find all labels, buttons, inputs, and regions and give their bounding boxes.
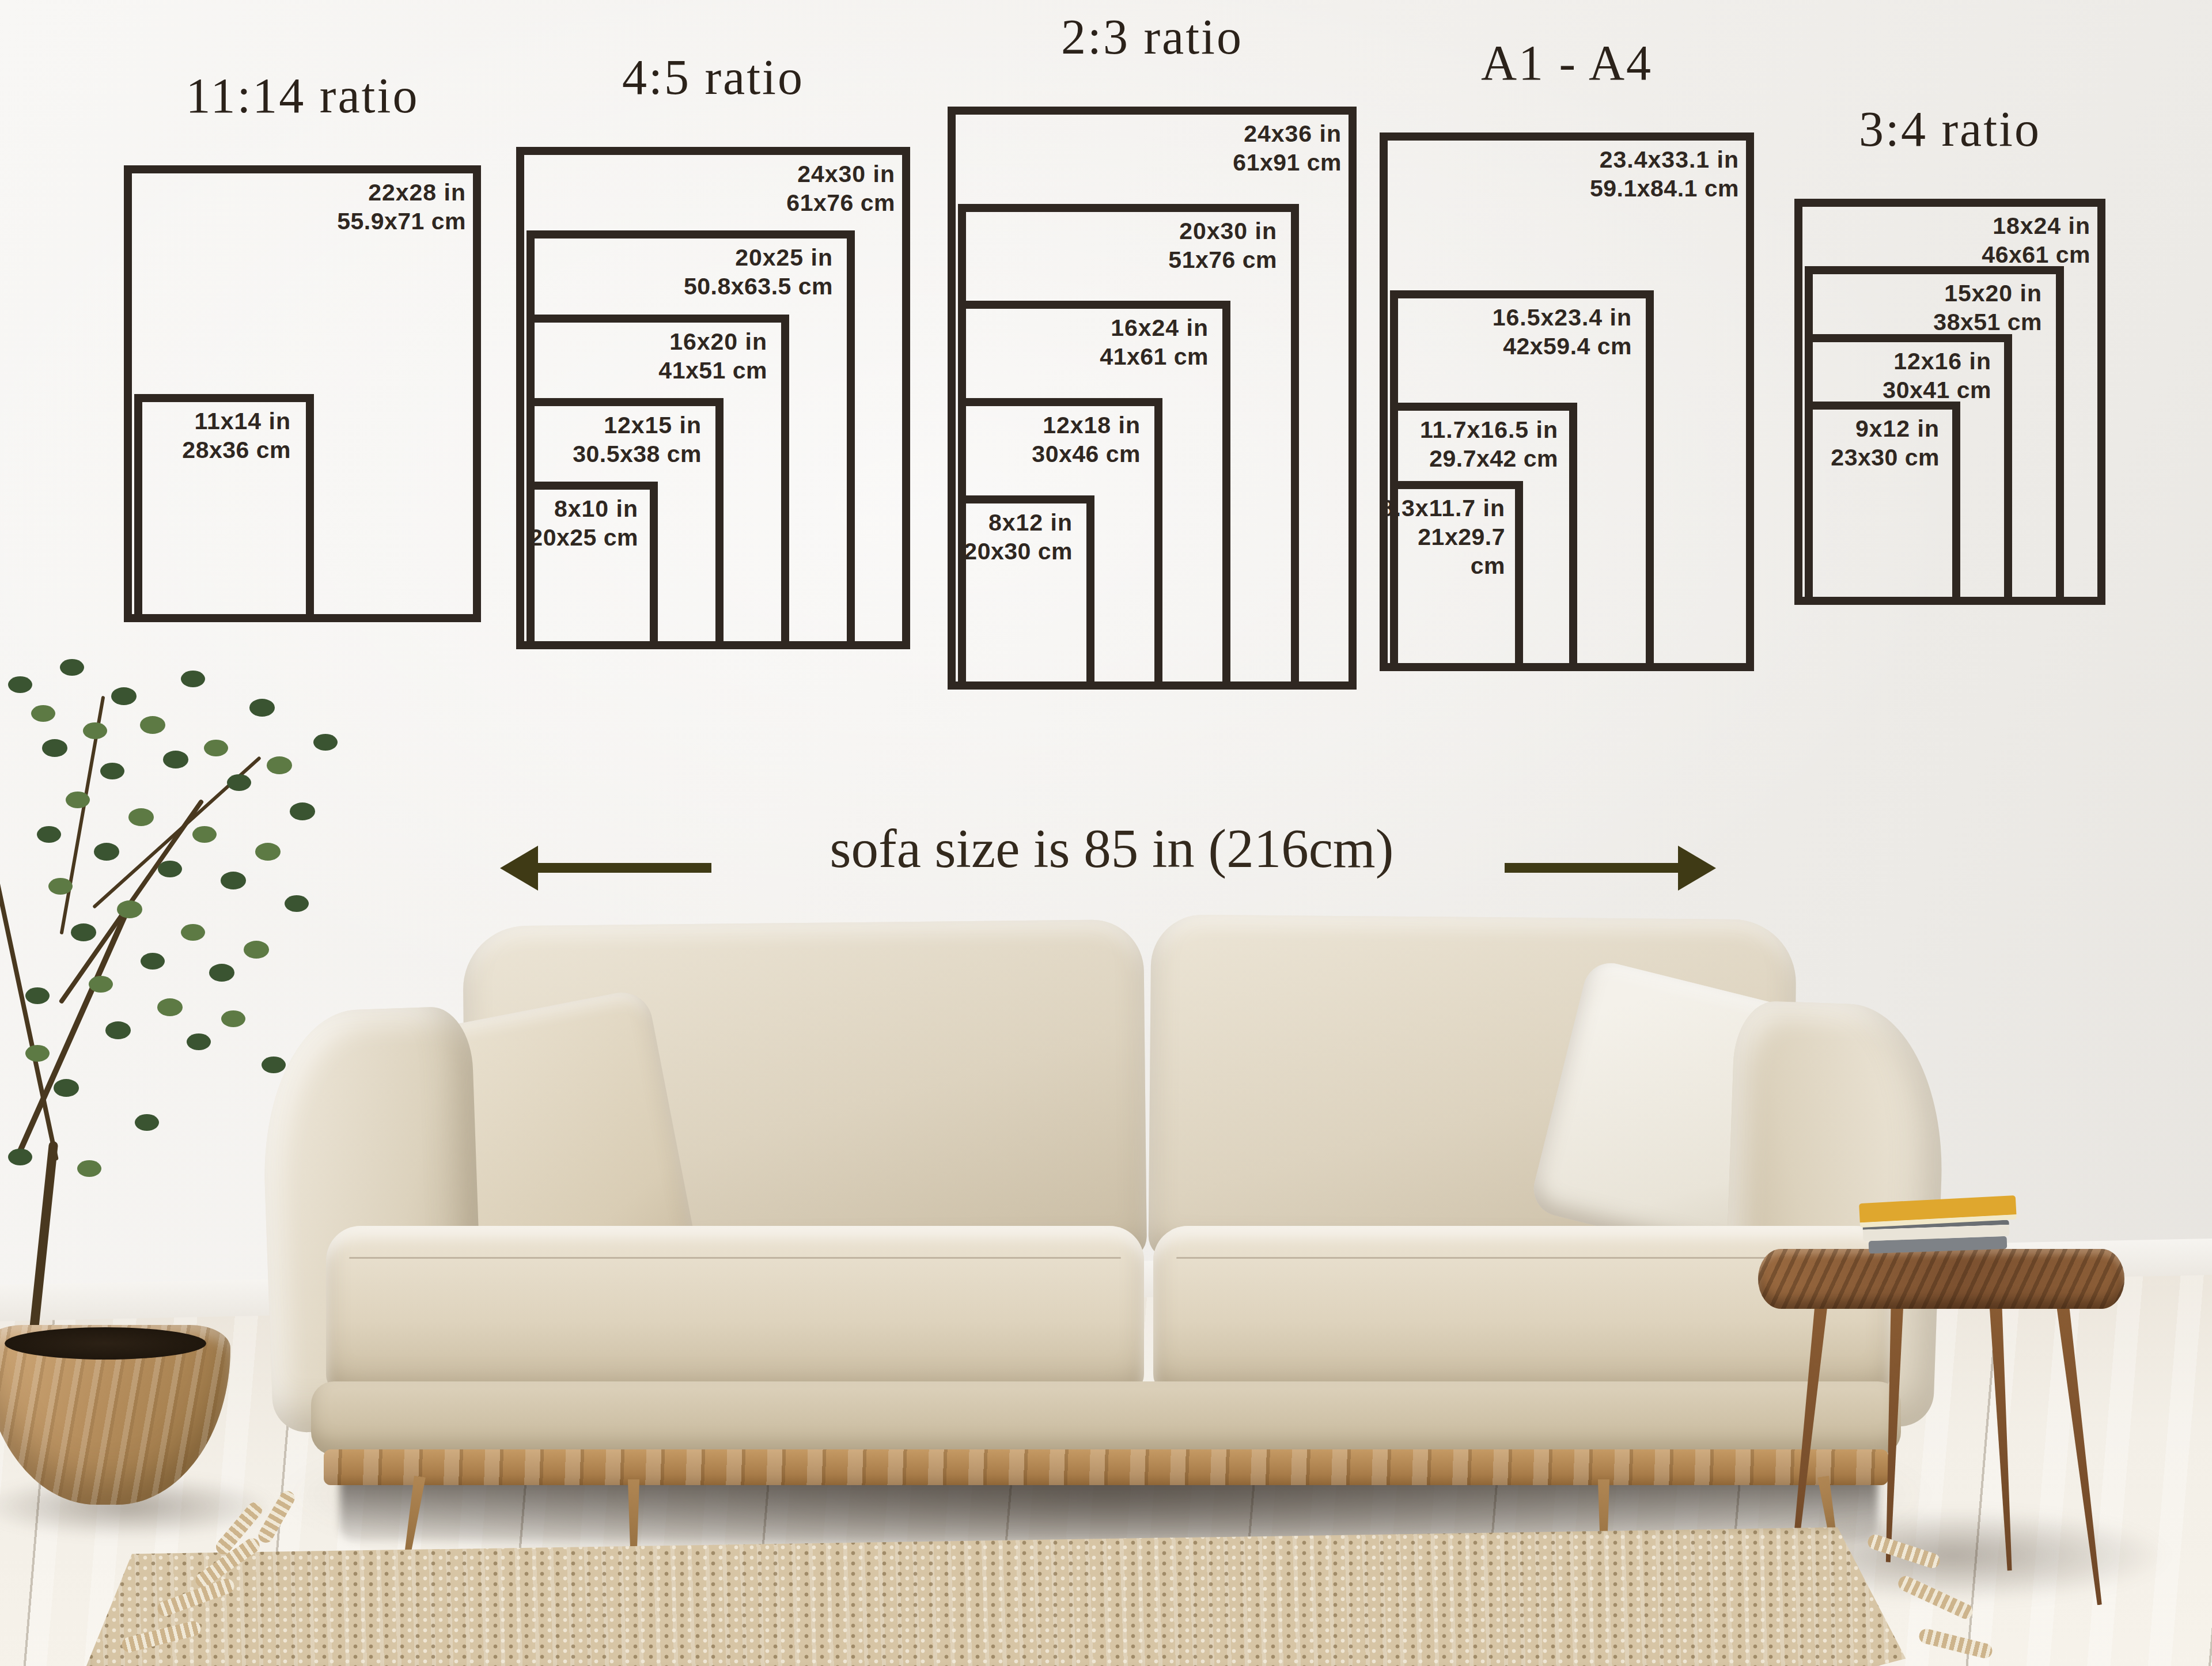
size-label: 16.5x23.4 in42x59.4 cm bbox=[1493, 303, 1632, 361]
group-title: 3:4 ratio bbox=[1725, 102, 2175, 157]
plant-soil bbox=[5, 1327, 206, 1360]
size-label: 11.7x16.5 in29.7x42 cm bbox=[1420, 415, 1558, 473]
size-label: 22x28 in55.9x71 cm bbox=[337, 178, 466, 236]
size-label: 8x10 in20x25 cm bbox=[529, 494, 638, 552]
size-label: 8x12 in20x30 cm bbox=[964, 508, 1073, 566]
sofa-seat-cushion-left bbox=[326, 1226, 1144, 1399]
size-label: 24x30 in61x76 cm bbox=[786, 160, 895, 217]
size-label: 12x16 in30x41 cm bbox=[1883, 347, 1991, 404]
sofa-size-caption: sofa size is 85 in (216cm) bbox=[737, 817, 1486, 880]
group-title: A1 - A4 bbox=[1310, 36, 1823, 90]
size-label: 23.4x33.1 in59.1x84.1 cm bbox=[1590, 145, 1739, 203]
size-label: 8.3x11.7 in21x29.7 cm bbox=[1380, 494, 1505, 580]
size-label: 12x18 in30x46 cm bbox=[1032, 411, 1141, 468]
size-label: 16x24 in41x61 cm bbox=[1100, 313, 1209, 371]
size-guide-mockup-scene: 11:14 ratio 22x28 in55.9x71 cm 11x14 in2… bbox=[0, 0, 2212, 1666]
size-guide-group-a1-a4: A1 - A4 23.4x33.1 in59.1x84.1 cm 16.5x23… bbox=[1380, 132, 1754, 671]
size-guide-group-2-3: 2:3 ratio 24x36 in61x91 cm 20x30 in51x76… bbox=[948, 107, 1357, 690]
size-label: 15x20 in38x51 cm bbox=[1933, 279, 2042, 336]
left-arrow-icon bbox=[536, 863, 711, 873]
size-label: 16x20 in41x51 cm bbox=[658, 327, 767, 385]
sofa-wood-rail bbox=[324, 1449, 1888, 1485]
side-table-top bbox=[1758, 1249, 2124, 1309]
size-label: 12x15 in30.5x38 cm bbox=[573, 411, 702, 468]
size-guide-group-4-5: 4:5 ratio 24x30 in61x76 cm 20x25 in50.8x… bbox=[516, 147, 910, 649]
right-arrow-icon bbox=[1505, 863, 1680, 873]
size-guide-group-11-14: 11:14 ratio 22x28 in55.9x71 cm 11x14 in2… bbox=[124, 165, 481, 622]
sofa-base bbox=[311, 1381, 1901, 1455]
size-label: 9x12 in23x30 cm bbox=[1831, 414, 1940, 472]
size-guide-group-3-4: 3:4 ratio 18x24 in46x61 cm 15x20 in38x51… bbox=[1794, 199, 2105, 605]
size-label: 20x30 in51x76 cm bbox=[1168, 217, 1277, 274]
size-label: 11x14 in28x36 cm bbox=[182, 407, 291, 464]
size-label: 24x36 in61x91 cm bbox=[1233, 119, 1342, 177]
size-label: 20x25 in50.8x63.5 cm bbox=[684, 243, 833, 301]
size-label: 18x24 in46x61 cm bbox=[1982, 211, 2090, 269]
